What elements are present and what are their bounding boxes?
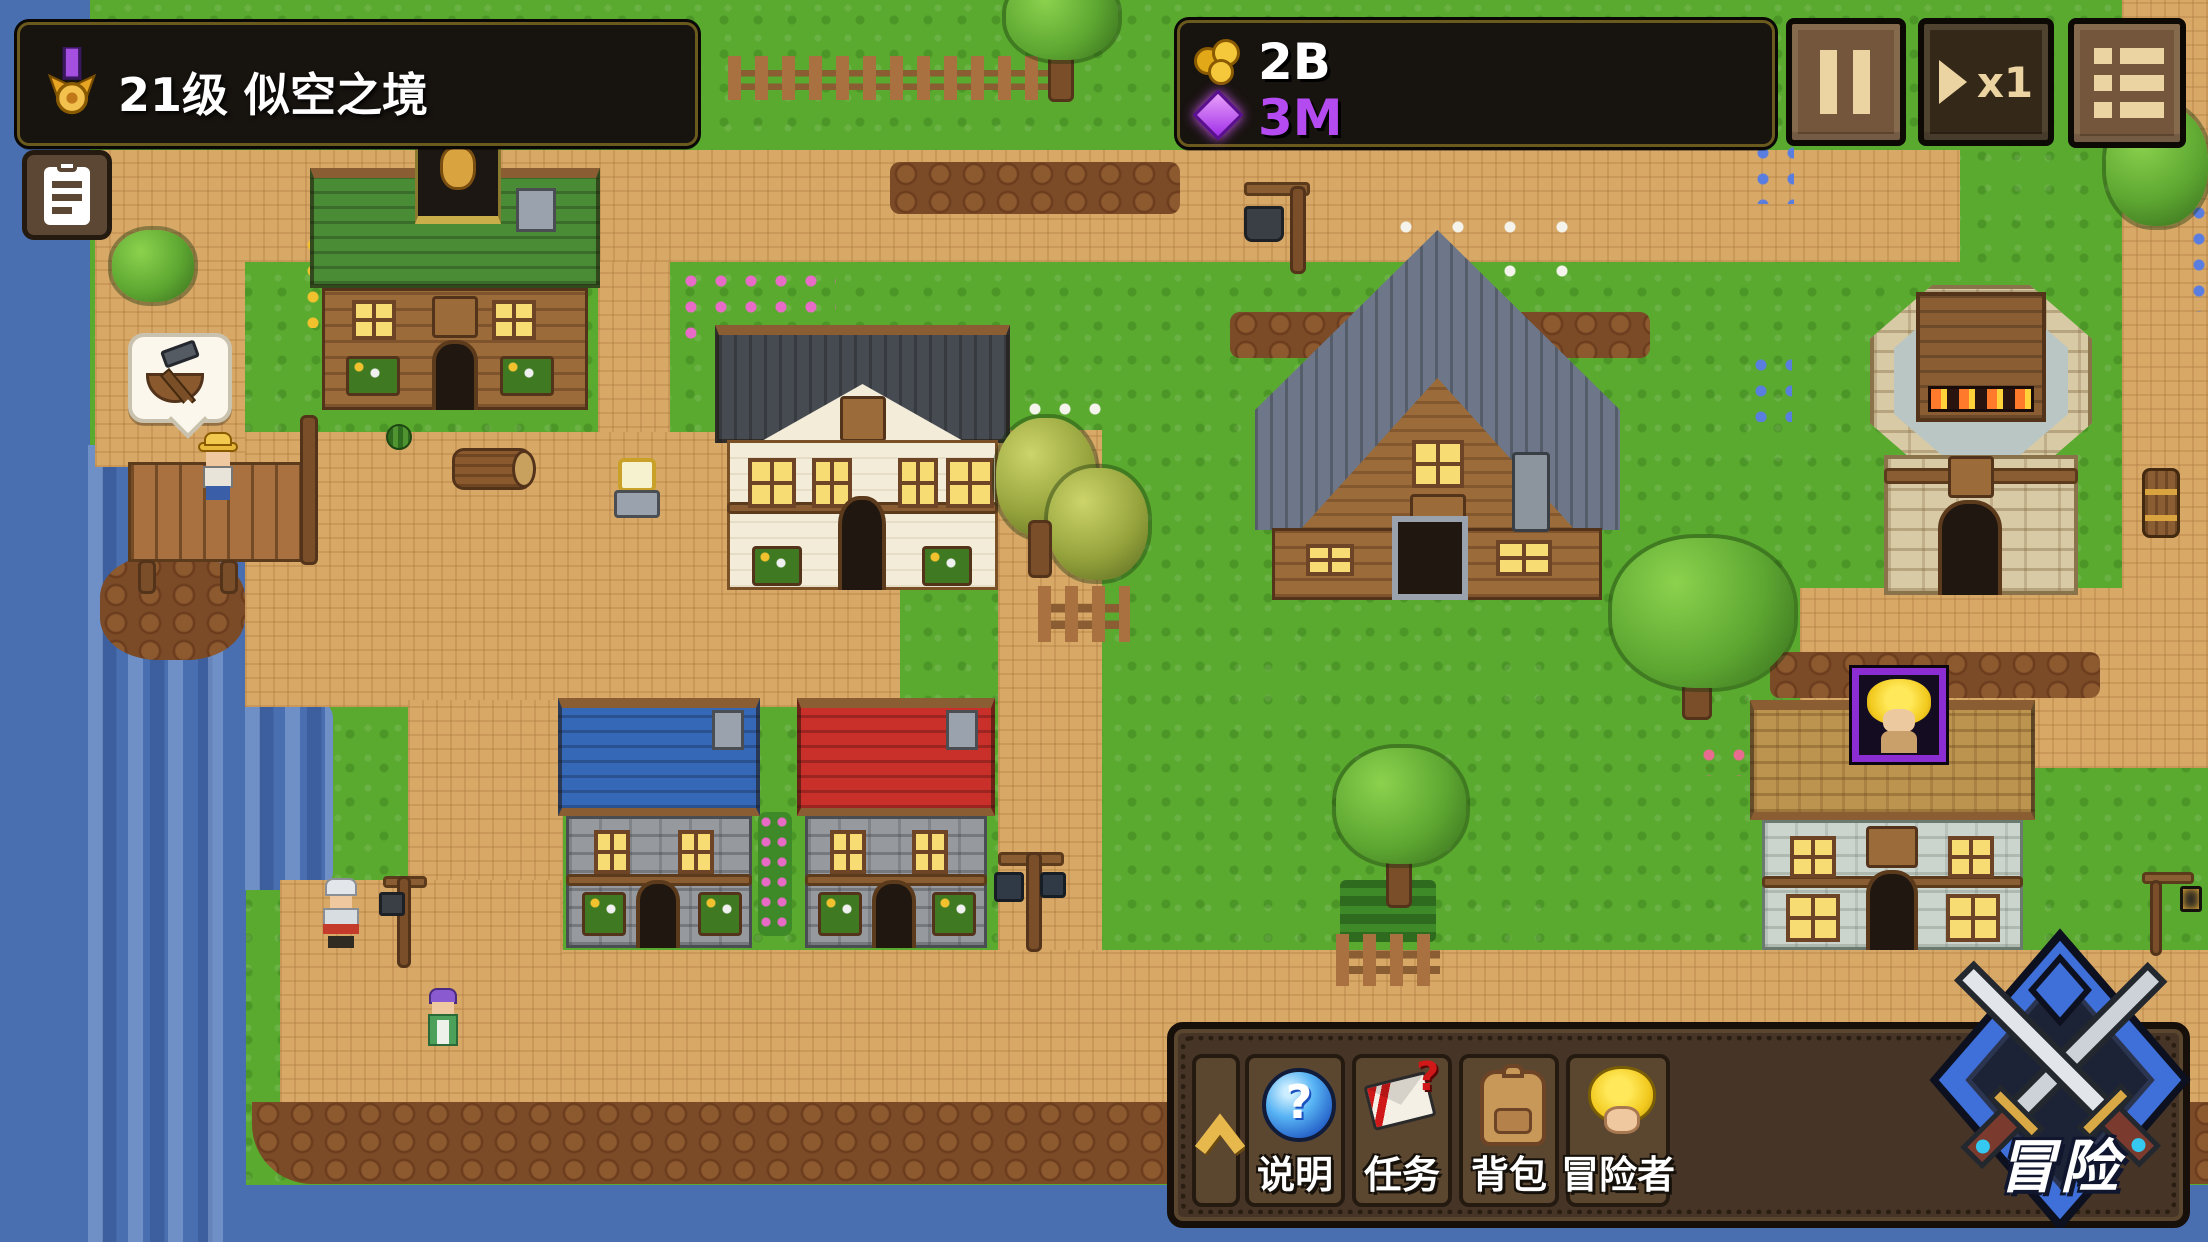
inn-window [1786, 894, 1840, 942]
inn-sign [1866, 826, 1918, 868]
flower-vine-column [758, 812, 792, 936]
currency-panel: 2B 3M [1177, 20, 1775, 147]
level-banner: 21级 似空之境 [17, 22, 698, 146]
flower-box [500, 356, 554, 396]
house-green-window [352, 300, 396, 340]
lamppost-lantern [2180, 886, 2202, 912]
menu-button[interactable] [2068, 18, 2186, 148]
speed-label: x1 [1977, 58, 2033, 107]
dock-post [220, 560, 238, 594]
dock-pole [300, 415, 318, 565]
collapse-button[interactable] [1192, 1054, 1240, 1207]
npc-face [432, 1002, 454, 1014]
npc-apron [437, 1020, 449, 1044]
pause-button[interactable] [1786, 18, 1906, 146]
barn-door [1392, 516, 1468, 600]
hanging-barrel [1040, 872, 1066, 898]
backpack-button[interactable]: 背包 [1459, 1054, 1559, 1207]
hanging-post [397, 876, 411, 968]
house-green-window [492, 300, 536, 340]
dock-post [138, 560, 156, 594]
menu-row-bar [2120, 75, 2164, 91]
npc-farmer [198, 432, 238, 502]
inn-window [1790, 836, 1836, 878]
house-blue-window [594, 830, 630, 874]
house-red-door [872, 880, 916, 948]
selection-portrait[interactable] [1852, 668, 1946, 762]
inn-window [1948, 836, 1994, 878]
clipboard-clip [57, 160, 77, 172]
tree-trunk [1028, 520, 1052, 578]
house-blue-door [636, 880, 680, 948]
adventure-label: 冒险 [1998, 1120, 2122, 1204]
flower-box [752, 546, 802, 586]
game-screen: 21级 似空之境 2B 3M x1 [0, 0, 2208, 1242]
tower-plaque [1948, 456, 1994, 498]
lantern-prop [618, 458, 656, 492]
quest-log-button[interactable] [22, 150, 112, 240]
portrait-body [1881, 731, 1917, 753]
house-white-window [748, 458, 796, 508]
npc-boots [328, 936, 354, 948]
house-white-window [946, 458, 994, 508]
adventurers-button[interactable]: 冒险者 [1566, 1054, 1670, 1207]
quest-question-glyph: ? [1416, 1054, 1439, 1100]
npc-face [330, 896, 352, 908]
speech-bubble[interactable] [128, 333, 232, 423]
house-green-plaque [432, 296, 478, 338]
backpack-icon [1480, 1070, 1546, 1146]
straw-hat [204, 432, 232, 446]
backpack-label: 背包 [1471, 1144, 1547, 1199]
npc-overalls [206, 486, 230, 500]
water-inlet [245, 700, 333, 890]
flower-box [698, 892, 742, 936]
help-label: 说明 [1257, 1144, 1333, 1199]
adventurer-head-icon [1586, 1066, 1658, 1148]
tree [1336, 748, 1466, 864]
flowers-blue [1746, 352, 1792, 422]
gems-value: 3M [1258, 93, 1343, 143]
pause-bar [1853, 50, 1870, 114]
coin [1208, 59, 1234, 85]
house-red-window [912, 830, 948, 874]
npc-belt [323, 924, 359, 934]
clipboard-line [52, 194, 82, 201]
npc-barrel-carrier [2142, 468, 2180, 538]
flowers-blue [2184, 200, 2208, 312]
hanging-bucket [379, 892, 405, 916]
flower-box [932, 892, 976, 936]
fence-crop [1336, 934, 1440, 986]
barn-chimney [1512, 452, 1550, 532]
house-green-chimney [516, 188, 556, 232]
pause-icon [1820, 50, 1872, 114]
well-post [1290, 186, 1306, 274]
adventure-button[interactable]: 冒险 [1925, 928, 2195, 1228]
fence-white-house [1038, 586, 1130, 642]
quests-button[interactable]: ? 任务 [1352, 1054, 1452, 1207]
house-blue-window [678, 830, 714, 874]
tower-fire [1928, 386, 2034, 412]
level-label: 21级 似空之境 [118, 59, 428, 125]
backpack-handle [1502, 1064, 1524, 1078]
pause-bar [1820, 50, 1837, 114]
barn-window [1306, 544, 1354, 576]
tree-large [1612, 538, 1794, 688]
npc-shirt [203, 466, 233, 488]
flower-box [818, 892, 862, 936]
backpack-pocket [1494, 1108, 1532, 1134]
clipboard-line [52, 207, 72, 214]
speed-button[interactable]: x1 [1918, 18, 2054, 146]
clipboard-line [52, 181, 82, 188]
npc-knight [320, 878, 362, 950]
lantern-base [614, 490, 660, 518]
gold-value: 2B [1258, 37, 1331, 87]
road-mid-vertical [598, 262, 670, 442]
help-button[interactable]: ? 说明 [1245, 1054, 1345, 1207]
house-white-window [898, 458, 938, 508]
house-white-sign [840, 396, 886, 442]
flowers-blue [1748, 140, 1794, 204]
barn-window [1412, 440, 1464, 488]
fence-top [728, 56, 1050, 100]
flower-box [582, 892, 626, 936]
house-white-door [838, 496, 886, 590]
hammer-head-icon [160, 339, 200, 368]
helmet [325, 878, 357, 896]
portrait-face [1883, 709, 1915, 733]
barrel-post [1026, 852, 1042, 952]
house-blue-chimney [712, 710, 744, 750]
hanging-barrel [994, 872, 1024, 902]
melon-prop [386, 424, 412, 450]
tower-door [1938, 500, 2002, 595]
npc-face [206, 452, 230, 466]
shop-sign-bag-icon [440, 146, 476, 190]
flower-box [346, 356, 400, 396]
purple-crystal-icon [1193, 90, 1244, 141]
house-red-chimney [946, 710, 978, 750]
cliff-top [890, 162, 1180, 214]
play-icon [1939, 60, 1967, 104]
house-red-window [830, 830, 866, 874]
log-end [512, 450, 536, 488]
barn-window [1496, 540, 1552, 576]
tree-olive [1048, 468, 1148, 580]
menu-row-square [2094, 48, 2112, 64]
list-menu-icon [2094, 48, 2164, 118]
question-orb-icon: ? [1262, 1068, 1336, 1142]
adventurer-face [1604, 1106, 1640, 1134]
flowers-pink-small [1694, 742, 1748, 776]
chevron-up-icon [1190, 1110, 1250, 1158]
house-green-door [432, 340, 478, 410]
clipboard-icon [44, 167, 90, 225]
question-glyph: ? [1286, 1075, 1313, 1129]
quests-label: 任务 [1364, 1144, 1440, 1199]
npc-villager [426, 988, 460, 1058]
menu-row-square [2094, 75, 2112, 91]
flower-box [922, 546, 972, 586]
well-bucket [1244, 206, 1284, 242]
inn-door [1866, 870, 1918, 950]
bush [112, 230, 194, 302]
medal-icon [44, 47, 100, 127]
menu-row-bar [2120, 48, 2164, 64]
menu-row-square [2094, 102, 2112, 118]
menu-row-bar [2120, 102, 2164, 118]
adventurers-label: 冒险者 [1561, 1144, 1675, 1199]
gold-coins-icon [1194, 39, 1246, 85]
